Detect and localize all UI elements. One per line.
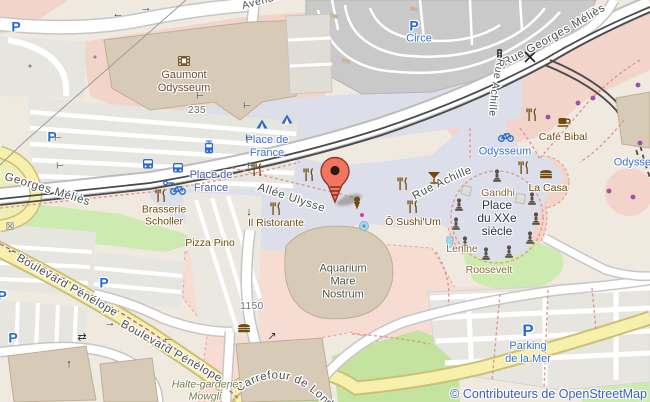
statue-icon <box>452 217 460 229</box>
attribution-link[interactable]: © Contributeurs de OpenStreetMap <box>450 387 647 401</box>
statue-icon <box>528 192 536 204</box>
statue-icon <box>493 169 501 181</box>
bus-stop-icon <box>143 159 153 169</box>
statue-icon <box>505 245 513 257</box>
restaurant-icon <box>398 178 407 191</box>
marker-center-dot <box>330 166 339 175</box>
cafe-icon <box>558 118 570 127</box>
fast-food-icon <box>238 324 250 332</box>
restaurant-icon <box>252 164 261 177</box>
cinema-icon <box>178 56 190 66</box>
restaurant-icon <box>527 109 536 122</box>
location-marker[interactable] <box>316 156 364 208</box>
map-canvas[interactable]: Rue Georges Méliès Rue Georges Méliès Av… <box>0 0 650 402</box>
bicycle-rental-icon <box>171 187 186 195</box>
marker-shadow <box>335 192 363 208</box>
fountain-icon <box>360 222 369 231</box>
key-locksmith-icon <box>164 181 174 185</box>
statue-icon <box>455 198 463 210</box>
marketplace-icon <box>282 115 293 124</box>
bus-stop-icon <box>173 163 183 173</box>
statue-icon <box>532 212 540 224</box>
restaurant-icon <box>304 169 313 182</box>
tram-stop-icon <box>205 141 213 153</box>
statue-icon <box>461 236 469 248</box>
restaurant-icon <box>271 203 280 216</box>
bicycle-rental-icon <box>499 134 514 142</box>
marketplace-icon <box>257 120 268 129</box>
statue-icon <box>526 231 534 243</box>
restaurant-icon <box>519 162 528 175</box>
bar-icon <box>428 172 440 183</box>
fast-food-icon <box>540 170 552 178</box>
statue-icon <box>482 247 490 259</box>
restaurant-icon <box>408 201 417 214</box>
restaurant-icon <box>156 190 165 203</box>
shop-dots <box>360 83 642 217</box>
